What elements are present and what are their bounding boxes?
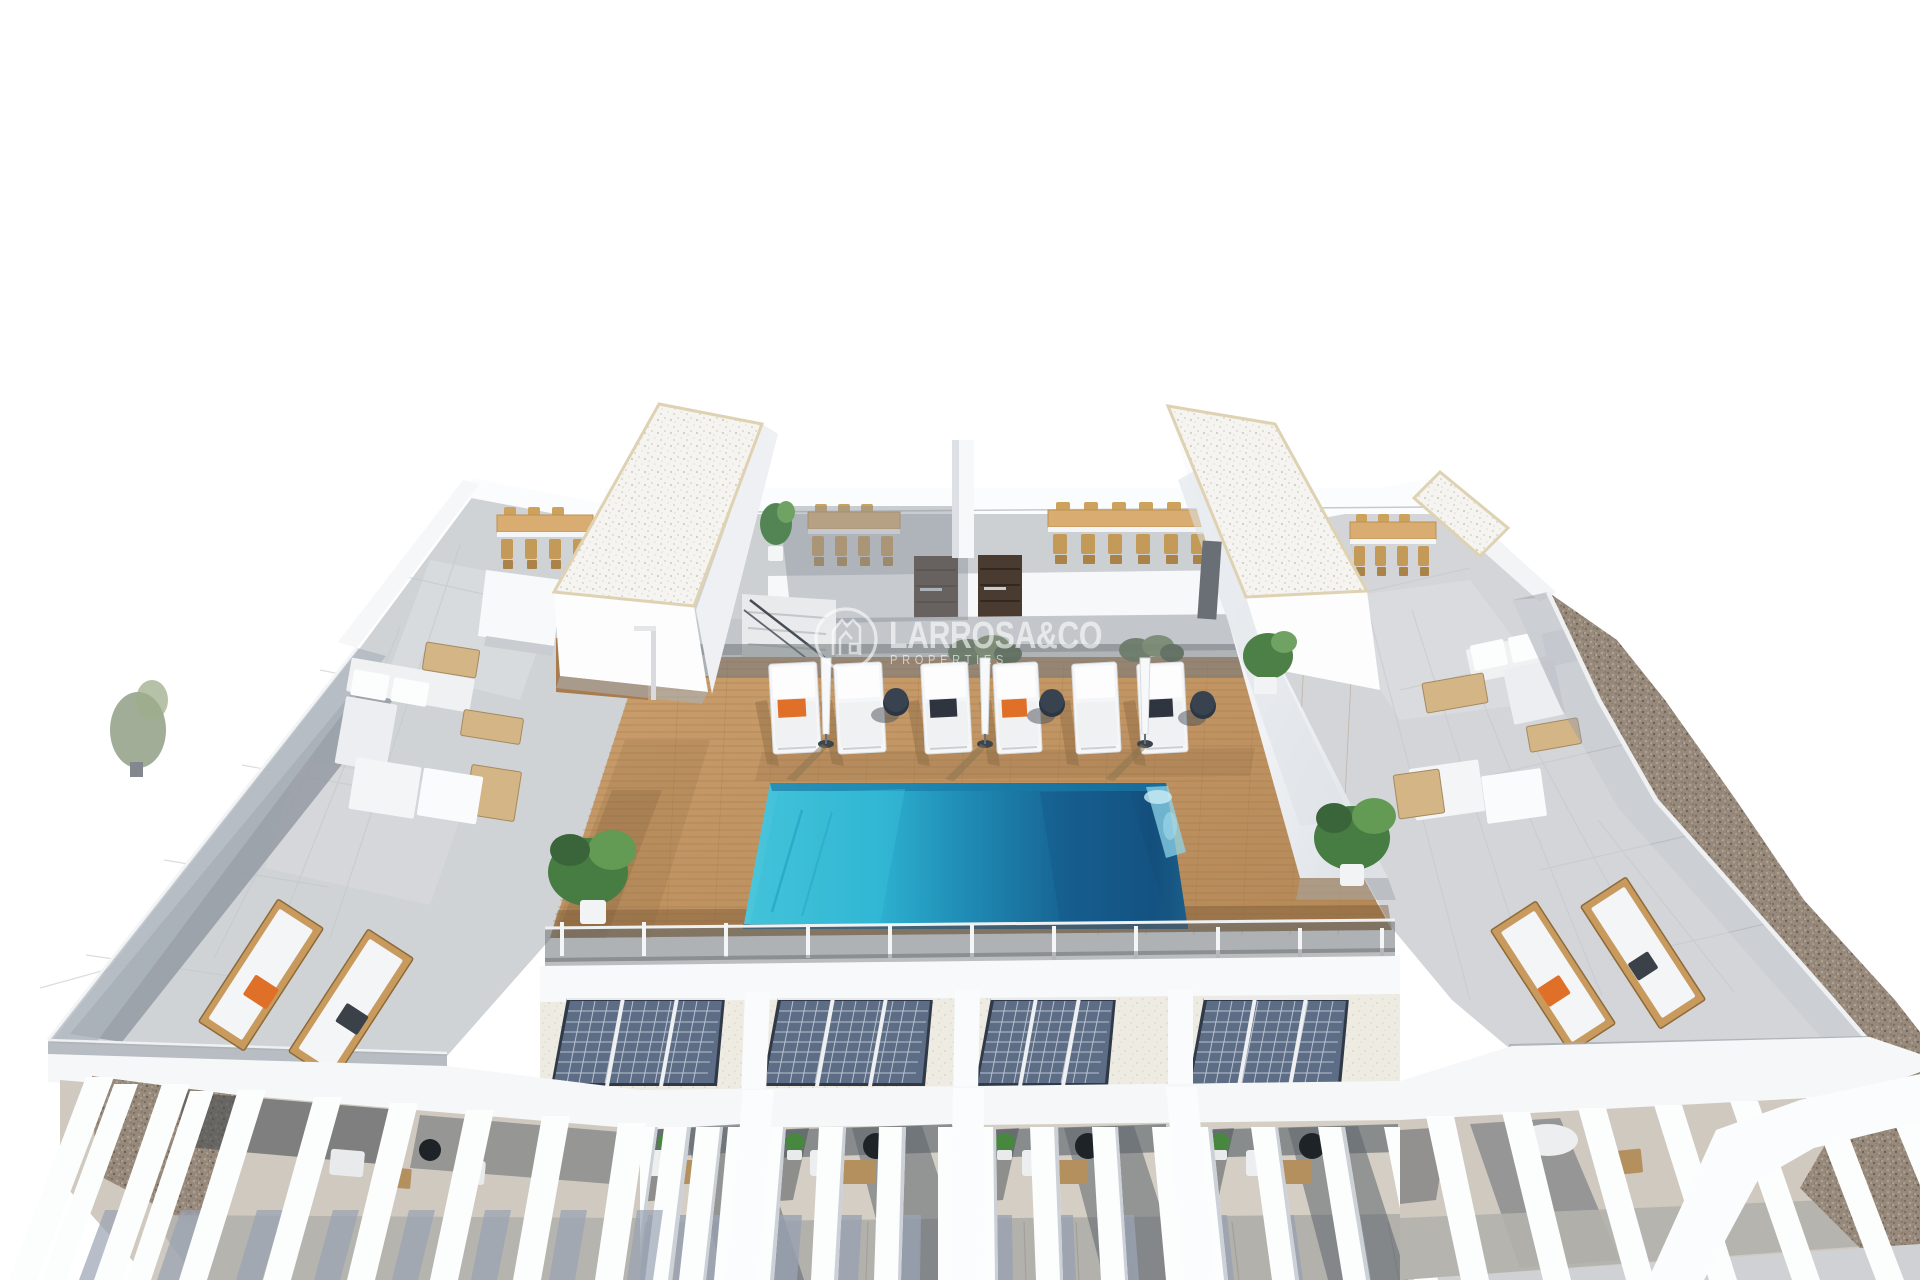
svg-text:LARROSA&CO: LARROSA&CO [889,615,1102,657]
svg-text:PROPERTIES: PROPERTIES [890,652,1008,667]
